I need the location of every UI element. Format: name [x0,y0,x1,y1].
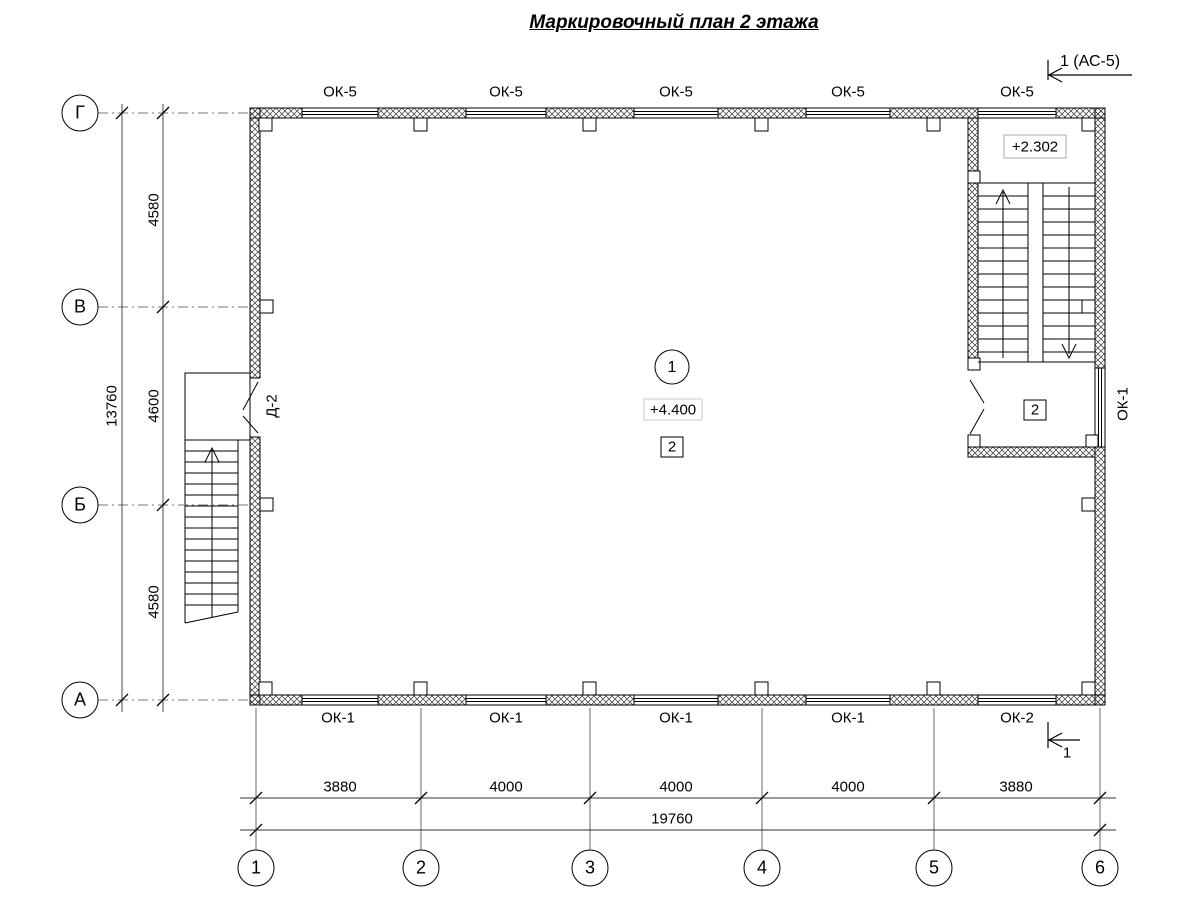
dim-bottom-segment-5: 3880 [999,779,1032,796]
door-symbols [243,380,984,434]
dim-left-segment-1: 4580 [146,193,163,226]
door-stairwell [970,380,984,434]
window-bottom-4 [806,695,890,705]
room-number-main: 1 [668,359,677,377]
window-label-bottom-4: ОК-1 [831,710,865,727]
stair-landing-level: +2.302 [1012,139,1058,156]
axis-col-3: 3 [585,858,595,879]
window-top-2 [466,108,546,118]
axis-grid [62,95,1118,886]
axis-col-4: 4 [757,858,767,879]
window-top-4 [806,108,890,118]
window-label-top-2: ОК-5 [489,84,523,101]
window-label-bottom-5: ОК-2 [1000,710,1034,727]
window-label-bottom-1: ОК-1 [321,710,355,727]
dim-bottom-segment-4: 4000 [831,779,864,796]
axis-col-1: 1 [251,858,261,879]
axis-row-b: Б [74,495,86,516]
axis-row-v: В [74,297,86,318]
dim-bottom-total: 19760 [651,811,693,828]
window-label-bottom-3: ОК-1 [659,710,693,727]
axis-col-6: 6 [1095,858,1105,879]
window-label-top-5: ОК-5 [1000,84,1034,101]
window-symbols [302,108,1105,705]
dim-bottom-segment-2: 4000 [489,779,522,796]
window-bottom-5 [978,695,1056,705]
stair-down-arrow [1062,187,1076,358]
dim-bottom-segment-3: 4000 [659,779,692,796]
floor-plan-drawing [0,0,1200,900]
left-stair [185,373,250,623]
window-top-1 [302,108,378,118]
floor-plan-page: Маркировочный план 2 этажа 1 (АС-5) 1 ОК… [0,0,1200,900]
window-label-top-1: ОК-5 [323,84,357,101]
window-label-top-3: ОК-5 [659,84,693,101]
window-label-top-4: ОК-5 [831,84,865,101]
window-label-right: ОК-1 [1115,387,1132,421]
door-label-d2: Д-2 [264,394,281,418]
axis-row-a: А [74,690,86,711]
axis-col-2: 2 [416,858,426,879]
dimension-ticks [116,107,1106,836]
window-top-3 [634,108,718,118]
section-label-bottom: 1 [1063,745,1071,762]
dim-left-segment-3: 4580 [146,585,163,618]
axis-row-g: Г [75,103,85,124]
axis-col-5: 5 [929,858,939,879]
window-label-bottom-2: ОК-1 [489,710,523,727]
dim-left-total: 13760 [104,385,121,427]
room-finish-type-main: 2 [668,439,676,456]
window-bottom-1 [302,695,378,705]
right-stairwell [978,183,1095,362]
room-finish-type-stair-room: 2 [1031,402,1039,419]
window-top-5 [978,108,1056,118]
room-level-main: +4.400 [650,402,696,419]
window-bottom-2 [466,695,546,705]
dim-bottom-segment-1: 3880 [323,779,356,796]
window-bottom-3 [634,695,718,705]
dim-left-segment-2: 4600 [146,389,163,422]
section-label-top: 1 (АС-5) [1060,53,1120,71]
drawing-title: Маркировочный план 2 этажа [529,12,818,34]
dimension-lines [116,104,1116,836]
